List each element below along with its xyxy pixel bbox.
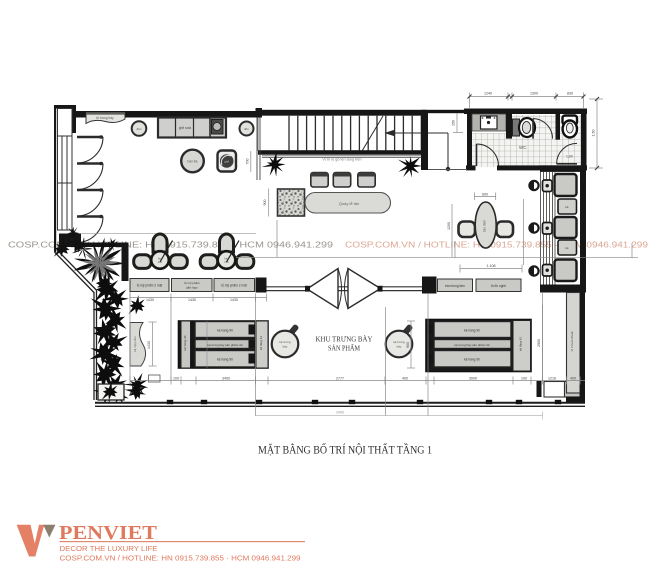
svg-text:bày: bày (283, 345, 288, 349)
svg-text:kệ tầng 42: kệ tầng 42 (259, 336, 263, 350)
svg-text:1240: 1240 (484, 92, 492, 96)
svg-text:SẢN PHẨM: SẢN PHẨM (328, 345, 361, 353)
svg-text:1430: 1430 (230, 298, 238, 302)
svg-text:kệ: kệ (565, 205, 569, 209)
svg-text:bày: bày (397, 345, 402, 349)
svg-text:gắn logo: gắn logo (186, 285, 198, 290)
svg-text:đôn: đôn (244, 127, 249, 131)
svg-text:PENVIET: PENVIET (59, 522, 157, 544)
svg-text:kệ trưng: kệ trưng (279, 340, 291, 344)
svg-text:1,50: 1,50 (592, 130, 596, 137)
svg-text:tròn: tròn (158, 260, 163, 264)
svg-text:Vị trí lam khuất: Vị trí lam khuất (570, 331, 574, 351)
svg-text:KHU TRƯNG BÀY: KHU TRƯNG BÀY (316, 336, 373, 344)
svg-text:900: 900 (263, 200, 267, 206)
svg-text:3465: 3465 (336, 411, 344, 415)
svg-text:830: 830 (567, 92, 573, 96)
svg-text:bàn: bàn (158, 257, 163, 261)
svg-text:1216: 1216 (548, 377, 556, 381)
svg-text:1430: 1430 (146, 298, 154, 302)
svg-text:MẶT BẰNG BỐ TRÍ NỘI THẤT TẦNG: MẶT BẰNG BỐ TRÍ NỘI THẤT TẦNG 1 (258, 442, 432, 457)
svg-text:kệ hàng 40: kệ hàng 40 (183, 335, 187, 350)
svg-text:100: 100 (173, 377, 179, 381)
svg-text:2900: 2900 (537, 339, 541, 347)
svg-text:100: 100 (521, 377, 527, 381)
svg-text:tủ mỹ phẩm: tủ mỹ phẩm (184, 281, 200, 285)
svg-text:kệ hàng 90: kệ hàng 90 (464, 329, 480, 333)
svg-text:COSP.COM.VN / HOTLINE: HN 0915: COSP.COM.VN / HOTLINE: HN 0915.739.855 -… (345, 240, 648, 250)
svg-text:tủ đồ nghề: tủ đồ nghề (491, 284, 506, 288)
svg-text:1430: 1430 (188, 298, 196, 302)
svg-text:tủ mỹ phẩm 2 mặt: tủ mỹ phẩm 2 mặt (137, 284, 163, 288)
svg-text:Quầy lễ tân: Quầy lễ tân (339, 201, 359, 206)
svg-text:kệ trưng: kệ trưng (393, 340, 405, 344)
svg-text:kệ tầng 42: kệ tầng 42 (519, 337, 523, 351)
svg-text:1,80: 1,80 (566, 155, 573, 159)
svg-text:COSP.COM.VN / HOTLINE: HN 0915: COSP.COM.VN / HOTLINE: HN 0915.739.855 ·… (60, 553, 301, 562)
svg-text:bàn: bàn (224, 257, 229, 261)
svg-text:DECOR THE LUXURY LIFE: DECOR THE LUXURY LIFE (60, 546, 158, 553)
svg-text:400: 400 (402, 377, 408, 381)
svg-text:600: 600 (482, 193, 488, 197)
svg-text:bàn trung tâm: bàn trung tâm (445, 284, 465, 288)
svg-text:tủ mỹ phẩm 2 mặt: tủ mỹ phẩm 2 mặt (221, 284, 247, 288)
svg-text:150: 150 (452, 120, 456, 126)
svg-text:kệ mỹ phẩm: kệ mỹ phẩm (133, 336, 137, 352)
svg-text:tủ trưng bày: tủ trưng bày (96, 116, 114, 120)
svg-text:1200: 1200 (447, 222, 451, 230)
svg-text:3400: 3400 (222, 377, 230, 381)
svg-text:700: 700 (245, 159, 249, 165)
svg-text:1430: 1430 (147, 341, 151, 349)
svg-text:1300: 1300 (530, 92, 538, 96)
svg-text:900: 900 (406, 342, 410, 348)
svg-text:2777: 2777 (336, 377, 344, 381)
svg-text:kệ hàng 90: kệ hàng 90 (217, 358, 233, 362)
svg-text:đôn: đôn (136, 127, 141, 131)
svg-text:ghế: ghế (224, 160, 229, 164)
svg-text:kệ trưng bày sản phẩm 42: kệ trưng bày sản phẩm 42 (207, 343, 242, 347)
svg-text:bàn trà: bàn trà (188, 160, 198, 164)
svg-text:kệ hàng 90: kệ hàng 90 (217, 329, 233, 333)
svg-text:400: 400 (570, 377, 576, 381)
svg-text:tròn: tròn (224, 260, 229, 264)
svg-text:kệ trưng bày sản phẩm 42: kệ trưng bày sản phẩm 42 (454, 343, 489, 347)
svg-text:3000: 3000 (469, 377, 477, 381)
svg-text:Vị trí lộ gỗ lên tầng trên: Vị trí lộ gỗ lên tầng trên (322, 157, 361, 162)
svg-text:kệ hàng 90: kệ hàng 90 (464, 358, 480, 362)
svg-text:WC: WC (519, 145, 527, 150)
svg-text:kệ: kệ (565, 246, 569, 250)
svg-text:1.108: 1.108 (487, 264, 496, 268)
svg-text:bàn đàm: bàn đàm (483, 219, 487, 232)
svg-text:ghế sofa: ghế sofa (179, 126, 191, 130)
